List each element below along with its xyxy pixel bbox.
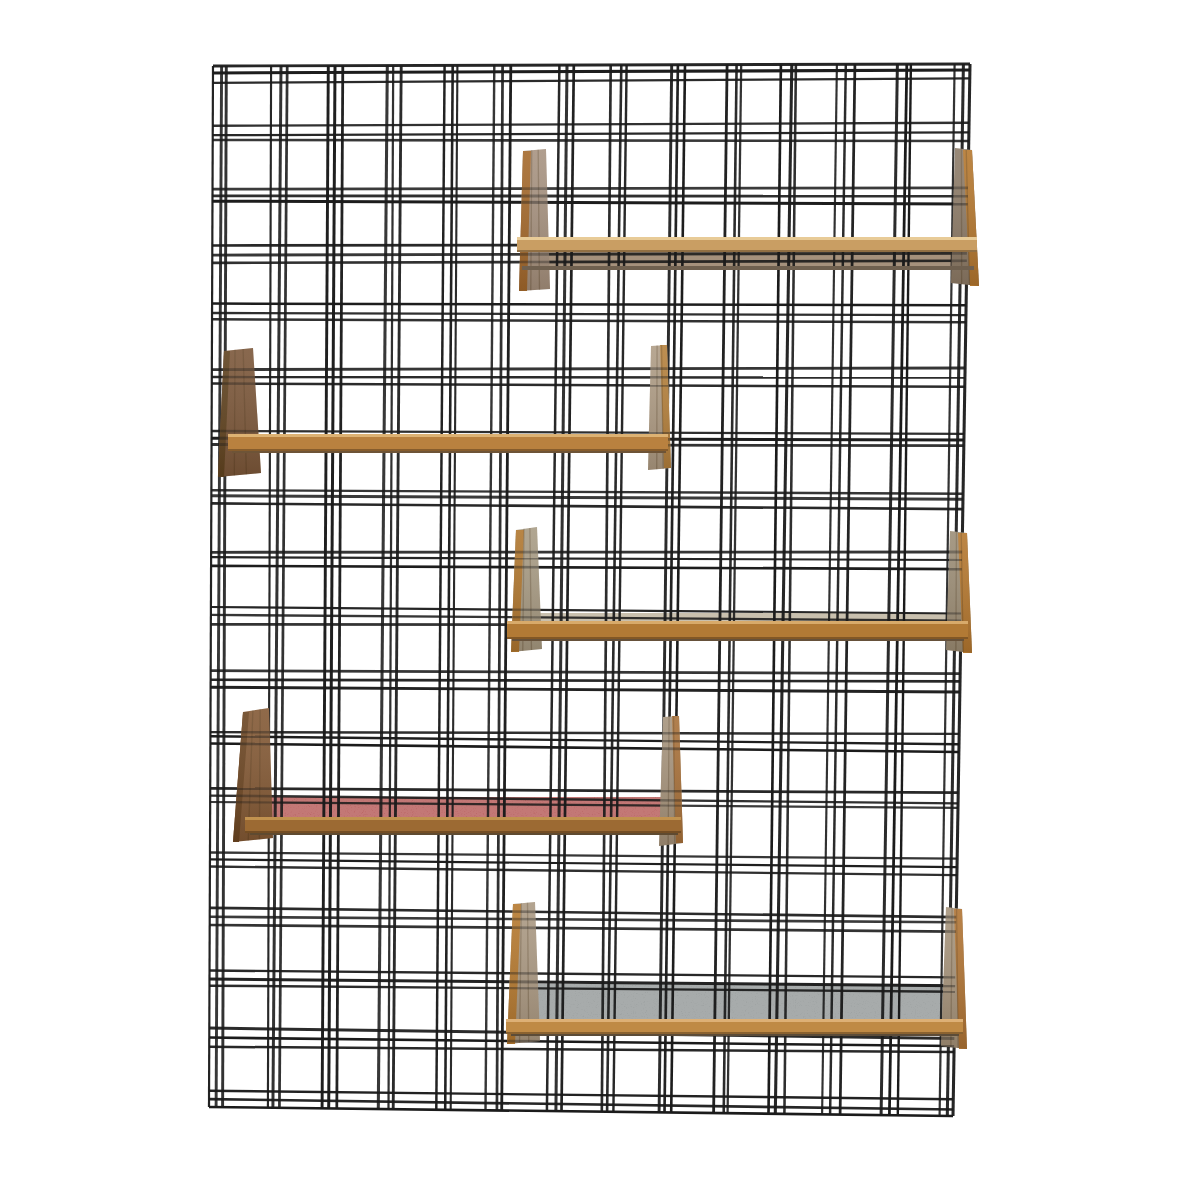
shelf-1-front-lowline <box>517 250 977 252</box>
shelf-4-front-lowline <box>245 831 681 833</box>
shelf-5-front-highlight <box>506 1019 963 1022</box>
shelf-4-front-highlight <box>245 817 681 820</box>
shelf-5-front-lowline <box>506 1032 963 1034</box>
horizontal-wire <box>213 140 969 141</box>
wall-shelf-scene <box>0 0 1178 1178</box>
horizontal-wire <box>212 304 966 306</box>
horizontal-wire <box>211 680 960 682</box>
shelf-1-under-shadow <box>522 266 974 270</box>
shelf-3-front-lowline <box>507 637 968 639</box>
shelf-3-front-highlight <box>507 621 968 624</box>
shelf-1-front-highlight <box>517 237 977 240</box>
shelf-2-front-lowline <box>228 449 668 451</box>
horizontal-wire <box>213 188 969 189</box>
shelf-2-front-highlight <box>228 434 668 437</box>
horizontal-wire <box>212 368 965 370</box>
product-photo <box>0 0 1178 1178</box>
horizontal-wire <box>212 253 967 255</box>
horizontal-wire <box>213 64 970 66</box>
